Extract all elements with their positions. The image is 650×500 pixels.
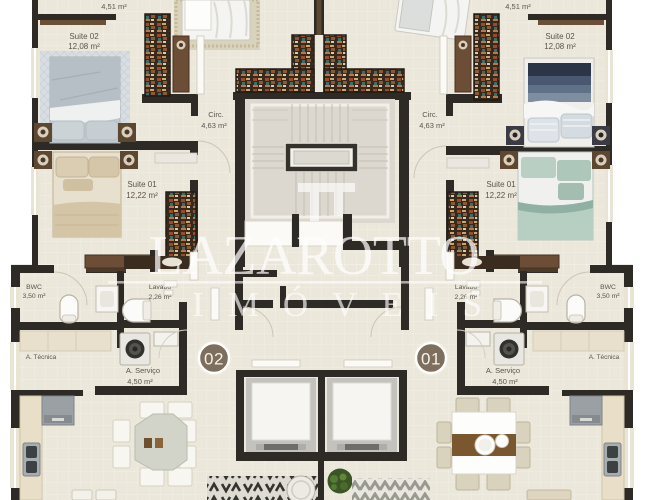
svg-text:3,50 m²: 3,50 m² bbox=[596, 293, 620, 300]
svg-text:Suite 01: Suite 01 bbox=[127, 180, 157, 189]
svg-text:12,08 m²: 12,08 m² bbox=[544, 42, 576, 51]
svg-text:Suite 01: Suite 01 bbox=[486, 180, 516, 189]
svg-text:LAZAROTTO: LAZAROTTO bbox=[149, 225, 479, 287]
svg-text:A. Serviço: A. Serviço bbox=[126, 366, 160, 375]
svg-text:IMÓVEIS: IMÓVEIS bbox=[192, 284, 506, 324]
svg-text:A. Técnica: A. Técnica bbox=[26, 354, 57, 361]
svg-text:Circ.: Circ. bbox=[422, 110, 437, 119]
svg-text:A. Serviço: A. Serviço bbox=[486, 366, 520, 375]
svg-text:A. Técnica: A. Técnica bbox=[589, 354, 620, 361]
svg-text:4,51 m²: 4,51 m² bbox=[101, 2, 127, 11]
svg-text:4,63 m²: 4,63 m² bbox=[419, 121, 445, 130]
svg-text:Circ.: Circ. bbox=[208, 110, 223, 119]
svg-text:4,50 m²: 4,50 m² bbox=[492, 377, 518, 386]
svg-text:BWC: BWC bbox=[26, 284, 42, 291]
svg-text:4,51 m²: 4,51 m² bbox=[505, 2, 531, 11]
svg-text:02: 02 bbox=[204, 350, 224, 369]
svg-text:01: 01 bbox=[421, 350, 441, 369]
svg-text:Suite 02: Suite 02 bbox=[545, 32, 575, 41]
svg-text:4,50 m²: 4,50 m² bbox=[127, 377, 153, 386]
svg-text:12,08 m²: 12,08 m² bbox=[68, 42, 100, 51]
svg-text:12,22 m²: 12,22 m² bbox=[485, 191, 517, 200]
svg-text:12,22 m²: 12,22 m² bbox=[126, 191, 158, 200]
svg-text:4,63 m²: 4,63 m² bbox=[201, 121, 227, 130]
svg-text:Suite 02: Suite 02 bbox=[69, 32, 99, 41]
svg-text:BWC: BWC bbox=[600, 284, 616, 291]
svg-text:3,50 m²: 3,50 m² bbox=[22, 293, 46, 300]
